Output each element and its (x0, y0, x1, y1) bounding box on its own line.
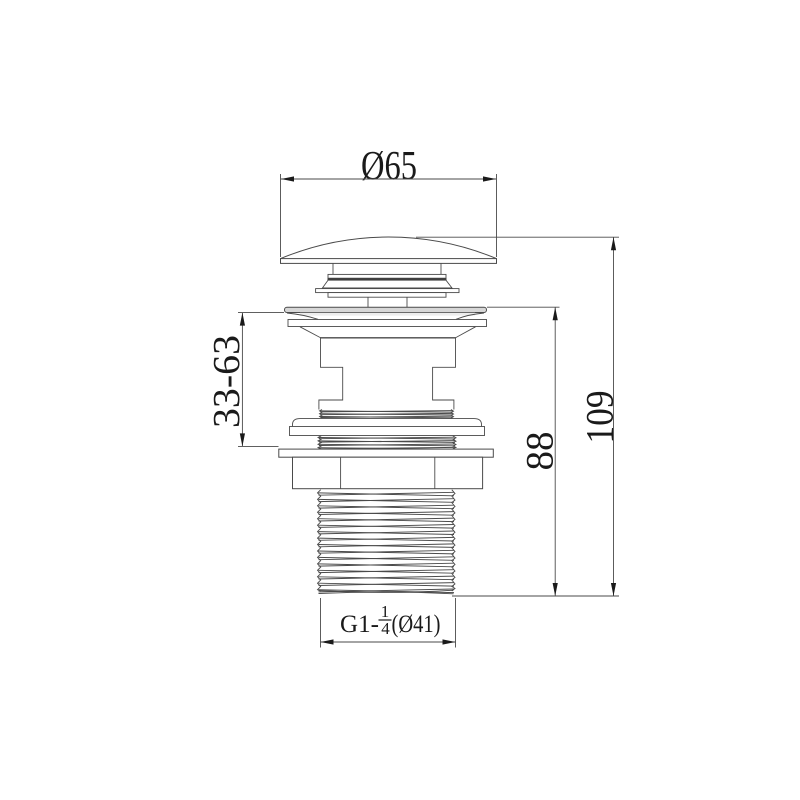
svg-text:33-63: 33-63 (206, 335, 248, 428)
svg-text:Ø65: Ø65 (361, 142, 417, 188)
svg-text:109: 109 (579, 391, 622, 444)
svg-text:G1-: G1- (340, 611, 379, 638)
svg-text:4: 4 (381, 619, 390, 638)
svg-text:(Ø41): (Ø41) (392, 611, 441, 638)
